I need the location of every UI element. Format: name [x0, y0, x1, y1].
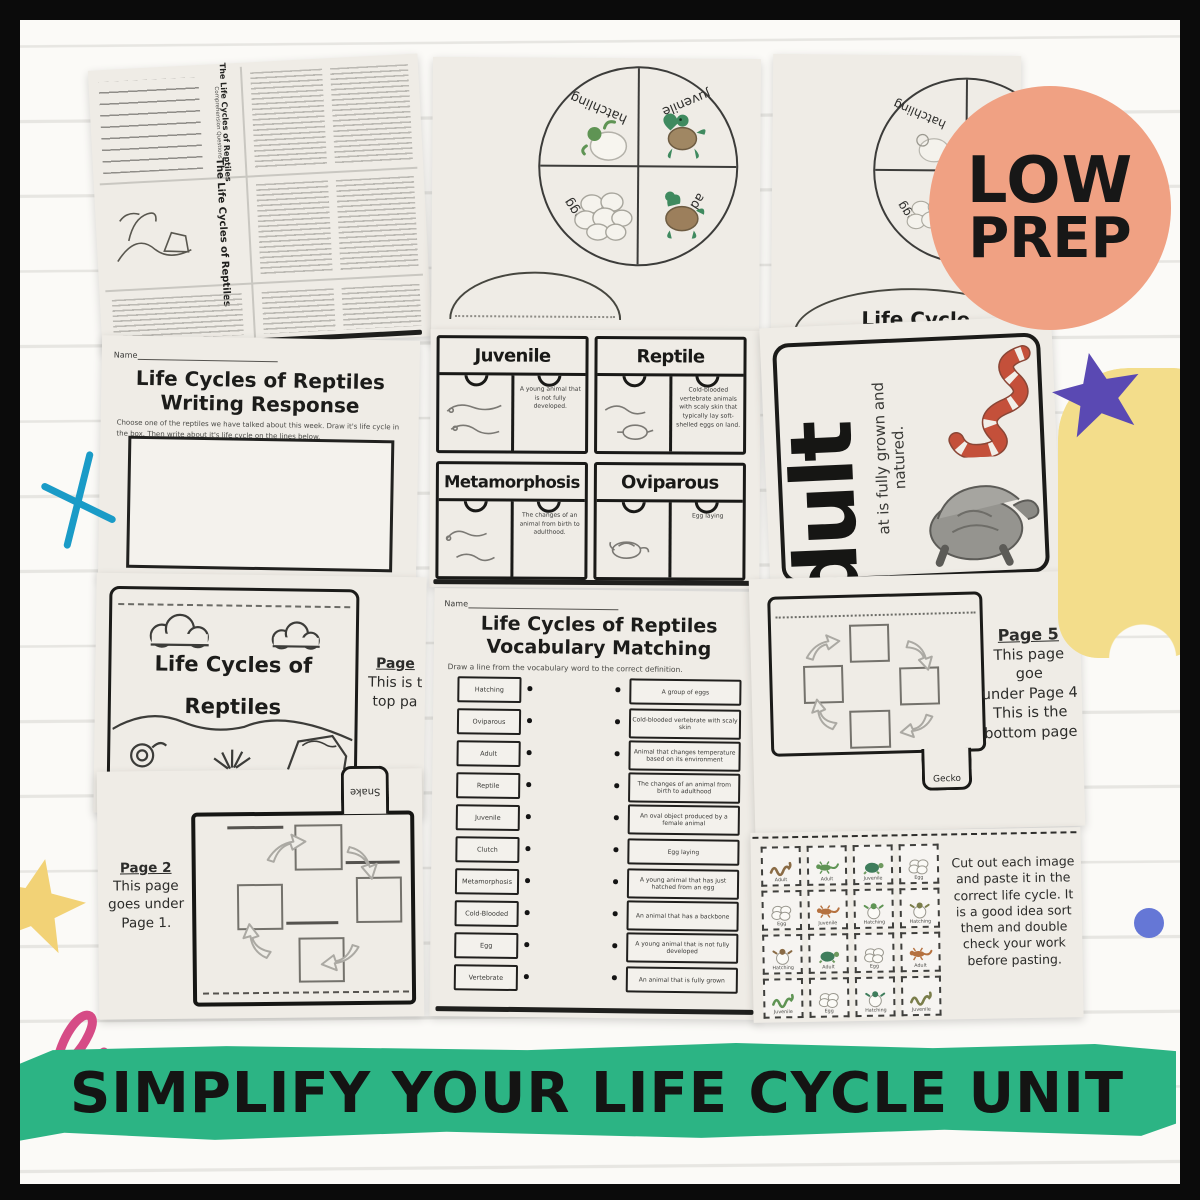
egg-cluster-image — [572, 190, 634, 242]
vocab-definition: Cold-blooded vertebrate with scaly skin — [629, 708, 741, 739]
vocab-word: Metamorphosis — [455, 868, 519, 895]
page2-note-line3: Page 1. — [104, 913, 188, 932]
cutout-card: Juvenile — [901, 976, 942, 1017]
cutout-card: Egg — [899, 844, 940, 885]
cycle-arrows — [788, 618, 955, 752]
cutout-card: Adult — [761, 846, 802, 887]
flip-note-line1: This is t — [360, 673, 430, 693]
puzzle-card-reptile: Reptile Cold-blooded vertebrate animals … — [594, 336, 747, 455]
puzzle-body: The changes of an animal from birth to a… — [438, 498, 584, 577]
puzzle-card-oviparous: Oviparous Egg laying — [593, 462, 746, 581]
vocab-definition: Egg laying — [627, 838, 739, 865]
yellow-blob-decoration — [1058, 368, 1200, 658]
name-label: Name — [444, 599, 468, 608]
badge-line1: LOW — [967, 151, 1134, 212]
puzzle-definition: A young animal that is not fully develop… — [517, 386, 583, 412]
wheel-base-arc — [449, 271, 621, 320]
puzzle-art — [601, 398, 663, 444]
vocab-definition: A young animal that has just hatched fro… — [627, 868, 739, 899]
puzzle-art — [442, 523, 504, 569]
vocab-word: Egg — [454, 932, 518, 959]
vocab-definition: An animal that has a backbone — [626, 900, 738, 931]
writing-title-line2: Writing Response — [101, 389, 419, 419]
booklet-text-block — [330, 64, 413, 164]
frame-left — [0, 0, 20, 1200]
vocab-definition: An animal that is fully grown — [626, 966, 738, 993]
puzzle-art — [600, 524, 662, 570]
vocab-instructions: Draw a line from the vocabulary word to … — [448, 662, 683, 674]
puzzle-body: Cold-blooded vertebrate animals with sca… — [597, 373, 743, 452]
booklet-cover-art — [106, 187, 203, 284]
cutout-card: Hatching — [762, 934, 803, 975]
flip-note-page: Page — [360, 654, 430, 674]
vocab-title-line1: Life Cycles of Reptiles — [434, 612, 764, 638]
puzzle-sheet: Juvenile A young animal that is not full… — [429, 329, 760, 589]
cutout-card: Adult — [900, 932, 941, 973]
answer-lines — [98, 77, 203, 174]
page2-note-line2: goes under — [104, 895, 188, 914]
blue-dot-decoration — [1134, 908, 1164, 938]
cutout-card: Hatching — [855, 976, 896, 1017]
drawing-box — [126, 436, 394, 573]
puzzle-definition: Cold-blooded vertebrate animals with sca… — [675, 386, 741, 430]
cutout-card: Adult — [808, 933, 849, 974]
frame-top — [0, 0, 1200, 20]
page5-tab: Gecko — [921, 748, 972, 791]
page5-note-line4: bottom page — [981, 723, 1081, 745]
vocab-definition: A young animal that is not fully develop… — [626, 932, 738, 963]
vocab-word: Clutch — [455, 836, 519, 863]
adult-turtle-image — [656, 188, 714, 240]
page2-note-line1: This page — [104, 877, 188, 896]
page5-note-line1: This page goe — [979, 644, 1080, 686]
writing-response-sheet: Name Life Cycles of Reptiles Writing Res… — [98, 335, 420, 585]
puzzle-term: Reptile — [597, 339, 743, 374]
flip-note-line2: top pa — [360, 692, 430, 712]
cutout-card: Hatching — [899, 888, 940, 929]
vocab-definition: Animal that changes temperature based on… — [628, 740, 740, 771]
booklet-cover-title-wrap: The Life Cycles of Reptiles — [200, 185, 245, 279]
tortoise-image — [911, 448, 1048, 574]
vocab-definition: The changes of an animal from birth to a… — [628, 772, 740, 803]
cutout-card: Hatching — [853, 888, 894, 929]
page2-note-title: Page 2 — [104, 859, 188, 878]
vocab-matching-sheet: Name Life Cycles of Reptiles Vocabulary … — [429, 588, 764, 1020]
booklet-sheet: The Life Cycles of Reptiles Comprehensio… — [88, 54, 432, 354]
cutout-instructions: Cut out each image and paste it in the c… — [951, 853, 1077, 969]
name-field: Name — [444, 598, 618, 610]
page5-sheet: Gecko Page 5 This page goe under Page 4 … — [749, 571, 1086, 835]
booklet-text-block — [336, 176, 419, 272]
cycle-arrows — [207, 818, 409, 990]
life-cycle-wheel: hatchling juvenile egg adult — [538, 66, 739, 267]
page5-note-line2: under Page 4 — [980, 683, 1080, 705]
sheet-edge-shadow — [433, 579, 755, 586]
cut-dash — [752, 831, 1076, 839]
puzzle-term: Juvenile — [439, 338, 585, 373]
spinner-wheel-sheet: hatchling juvenile egg adult — [431, 57, 761, 346]
coral-snake-image — [910, 338, 1041, 459]
puzzle-definition: The changes of an animal from birth to a… — [517, 512, 583, 538]
cutout-card: Egg — [761, 890, 802, 931]
booklet-text-block — [250, 69, 327, 169]
cutout-card: Egg — [809, 977, 850, 1018]
vocab-word: Hatching — [457, 676, 521, 703]
blue-x-decoration — [45, 450, 115, 555]
name-label: Name — [114, 350, 138, 359]
page2-tab-label: Snake — [350, 786, 381, 797]
adult-def-line2: natured. — [889, 425, 910, 489]
cutout-sheet: Adult Adult Juvenile Egg Egg Juvenile Ha… — [750, 827, 1083, 1023]
booklet-text-block — [342, 284, 422, 330]
puzzle-definition: Egg laying — [675, 512, 741, 521]
puzzle-card-juvenile: Juvenile A young animal that is not full… — [436, 335, 589, 454]
page2-note: Page 2 This page goes under Page 1. — [104, 859, 189, 933]
vocab-definition: An oval object produced by a female anim… — [628, 804, 740, 835]
booklet-text-block — [256, 180, 333, 276]
page5-note-line3: This is the — [980, 703, 1080, 725]
vocab-word: Reptile — [456, 772, 520, 799]
juvenile-image — [652, 108, 712, 162]
puzzle-card-metamorphosis: Metamorphosis The changes of an animal f… — [435, 461, 588, 580]
vocab-word: Adult — [456, 740, 520, 767]
puzzle-body: A young animal that is not fully develop… — [439, 372, 585, 451]
cutout-card: Juvenile — [763, 978, 804, 1019]
cutout-card: Adult — [807, 845, 848, 886]
frame-right — [1180, 0, 1200, 1200]
booklet-text-block — [262, 288, 336, 334]
puzzle-term: Oviparous — [597, 465, 743, 500]
bottom-banner: SIMPLIFY YOUR LIFE CYCLE UNIT — [18, 1042, 1176, 1144]
badge-line2: PREP — [968, 212, 1131, 265]
vocab-word: Oviparous — [457, 708, 521, 735]
banner-text: SIMPLIFY YOUR LIFE CYCLE UNIT — [70, 1061, 1124, 1126]
vocab-word: Cold-Blooded — [454, 900, 518, 927]
vocab-word: Vertebrate — [454, 964, 518, 991]
cutout-card: Egg — [854, 932, 895, 973]
adult-card-sheet: dult at is fully grown and natured. — [759, 316, 1062, 596]
product-cover-image: The Life Cycles of Reptiles Comprehensio… — [0, 0, 1200, 1200]
vocab-definition: A group of eggs — [629, 678, 741, 705]
vocab-word: Juvenile — [456, 804, 520, 831]
flip-cover-title-line2: Reptiles — [115, 693, 351, 720]
page5-tab-label: Gecko — [933, 774, 961, 785]
flip-cover-title-line1: Life Cycles of — [115, 651, 351, 678]
name-field: Name — [114, 349, 278, 362]
sheet-edge-shadow — [435, 1006, 753, 1015]
page2-tab: Snake — [341, 766, 390, 815]
puzzle-art — [443, 397, 505, 443]
booklet-text-block — [112, 293, 244, 342]
low-prep-badge: LOW PREP — [929, 86, 1171, 330]
vocab-title-line2: Vocabulary Matching — [434, 635, 764, 661]
flip-cover-note: Page This is t top pa — [360, 654, 431, 712]
cutout-card: Juvenile — [807, 889, 848, 930]
cutout-card: Juvenile — [853, 844, 894, 885]
page2-sheet: Snake Page 2 This page goes under Page 1… — [97, 768, 425, 1019]
frame-bottom — [0, 1184, 1200, 1200]
hatchling-image — [578, 116, 634, 164]
puzzle-term: Metamorphosis — [439, 464, 585, 499]
puzzle-body: Egg laying — [596, 499, 742, 578]
